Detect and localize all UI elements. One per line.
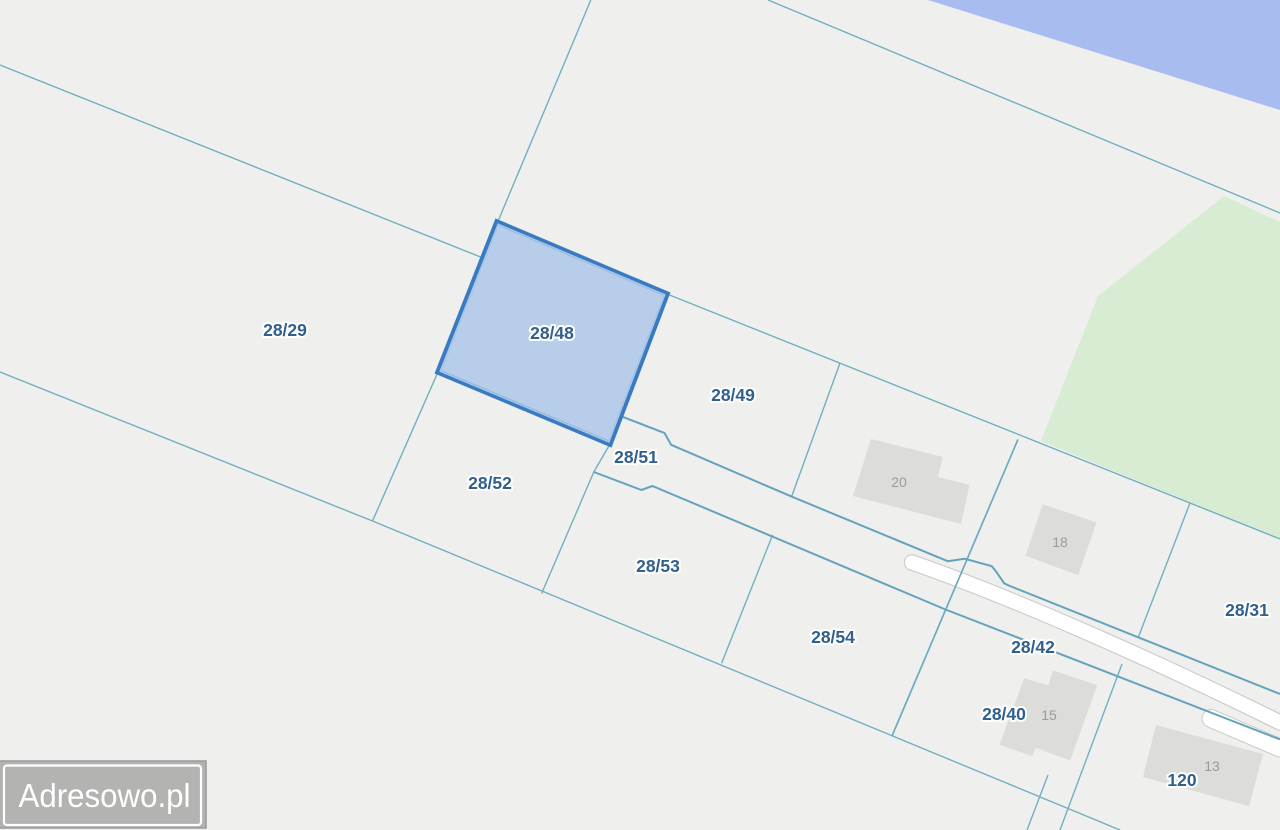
svg-text:28/29: 28/29	[263, 320, 307, 340]
svg-text:28/53: 28/53	[636, 556, 680, 576]
svg-text:20: 20	[891, 474, 907, 490]
svg-text:28/54: 28/54	[811, 627, 855, 647]
svg-text:28/51: 28/51	[614, 447, 658, 467]
svg-text:Adresowo.pl: Adresowo.pl	[19, 777, 191, 814]
svg-text:120: 120	[1167, 770, 1196, 790]
svg-text:15: 15	[1041, 707, 1057, 723]
svg-text:28/40: 28/40	[982, 704, 1026, 724]
svg-text:18: 18	[1052, 534, 1068, 550]
svg-text:28/42: 28/42	[1011, 637, 1055, 657]
svg-text:13: 13	[1204, 758, 1220, 774]
svg-text:28/52: 28/52	[468, 473, 512, 493]
svg-text:28/31: 28/31	[1225, 600, 1269, 620]
svg-text:28/48: 28/48	[530, 323, 574, 343]
svg-text:28/49: 28/49	[711, 385, 755, 405]
